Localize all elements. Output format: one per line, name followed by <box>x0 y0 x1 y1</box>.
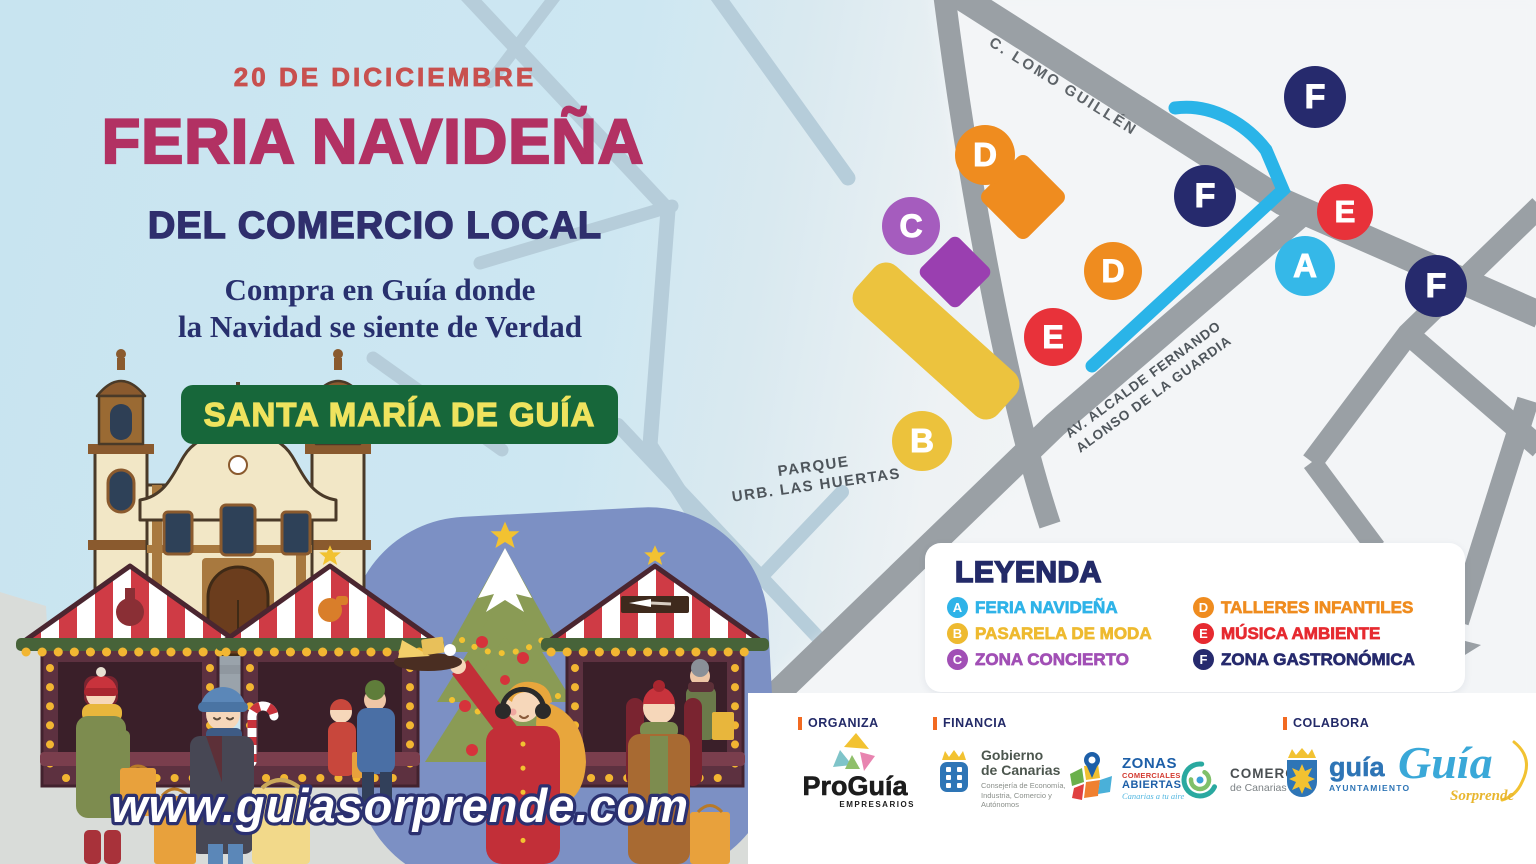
poster-tagline: Compra en Guía donde la Navidad se sient… <box>60 272 700 345</box>
organiza-text: ORGANIZA <box>808 716 879 730</box>
zonas-mosaic-icon <box>1068 750 1114 806</box>
tagline-line2: la Navidad se siente de Verdad <box>60 309 700 346</box>
legend-item: E MÚSICA AMBIENTE <box>1193 621 1465 646</box>
gobierno-name-line1: Gobierno <box>981 748 1076 763</box>
zonas-tagline: Canarias a tu aire <box>1122 791 1184 801</box>
location-banner: SANTA MARÍA DE GUÍA <box>181 385 618 444</box>
proguia-logo: ProGuía EMPRESARIOS <box>795 733 915 809</box>
label-tick-icon <box>798 717 802 730</box>
proguia-name: ProGuía <box>802 773 907 800</box>
legend-item: F ZONA GASTRONÓMICA <box>1193 647 1465 672</box>
financia-text: FINANCIA <box>943 716 1007 730</box>
legend-item-label: TALLERES INFANTILES <box>1221 598 1413 618</box>
label-tick-icon <box>1283 717 1287 730</box>
legend-item-label: FERIA NAVIDEÑA <box>975 598 1118 618</box>
colabora-label: COLABORA <box>1283 716 1369 730</box>
sorprende-name: Guía <box>1398 736 1493 789</box>
tagline-line1: Compra en Guía donde <box>60 272 700 309</box>
legend-badge-icon: C <box>947 649 968 670</box>
guia-sorprende-logo: Guía Sorprende <box>1398 736 1536 816</box>
zonas-line1: ZONAS <box>1122 756 1184 771</box>
zonas-comerciales-logo: ZONAS COMERCIALES ABIERTAS Canarias a tu… <box>1068 750 1184 806</box>
legend-item: C ZONA CONCIERTO <box>947 647 1193 672</box>
label-tick-icon <box>933 717 937 730</box>
legend-items: A FERIA NAVIDEÑA B PASARELA DE MODA C ZO… <box>947 595 1465 672</box>
comercio-swirl-icon <box>1178 758 1222 802</box>
gobierno-crest-icon <box>935 748 973 806</box>
proguia-subtitle: EMPRESARIOS <box>839 800 915 809</box>
gobierno-canarias-logo: Gobierno de Canarias Consejería de Econo… <box>935 748 1076 809</box>
legend-item: D TALLERES INFANTILES <box>1193 595 1465 620</box>
organiza-label: ORGANIZA <box>798 716 879 730</box>
legend-item-label: MÚSICA AMBIENTE <box>1221 624 1380 644</box>
gobierno-subtitle: Consejería de Economía, Industria, Comer… <box>981 781 1076 809</box>
legend-item: B PASARELA DE MODA <box>947 621 1193 646</box>
legend-item: A FERIA NAVIDEÑA <box>947 595 1193 620</box>
sorprende-subtitle: Sorprende <box>1450 788 1514 805</box>
financia-label: FINANCIA <box>933 716 1007 730</box>
zonas-line3: ABIERTAS <box>1122 780 1184 791</box>
event-date: 20 DE DICICIEMBRE <box>40 62 730 93</box>
website-text: www.guiasorprende.com <box>111 779 689 832</box>
legend-badge-icon: E <box>1193 623 1214 644</box>
legend-badge-icon: D <box>1193 597 1214 618</box>
poster-subtitle: DEL COMERCIO LOCAL <box>25 205 725 248</box>
legend-title: LEYENDA <box>955 556 1465 590</box>
legend-item-label: PASARELA DE MODA <box>975 624 1152 644</box>
legend-item-label: ZONA GASTRONÓMICA <box>1221 650 1415 670</box>
legend-badge-icon: B <box>947 623 968 644</box>
colabora-text: COLABORA <box>1293 716 1369 730</box>
ayuntamiento-logo: guía AYUNTAMIENTO <box>1283 746 1410 802</box>
legend-badge-icon: A <box>947 597 968 618</box>
legend-panel: LEYENDA A FERIA NAVIDEÑA B PASARELA DE M… <box>925 543 1465 692</box>
legend-badge-icon: F <box>1193 649 1214 670</box>
poster-canvas: www.guiasorprende.com 20 DE DICICIEMBRE … <box>0 0 1536 864</box>
poster-title: FERIA NAVIDEÑA <box>20 106 726 178</box>
ayuntamiento-shield-icon <box>1283 746 1321 802</box>
proguia-triangles-icon <box>832 733 878 773</box>
gobierno-name-line2: de Canarias <box>981 763 1076 778</box>
legend-item-label: ZONA CONCIERTO <box>975 650 1129 670</box>
